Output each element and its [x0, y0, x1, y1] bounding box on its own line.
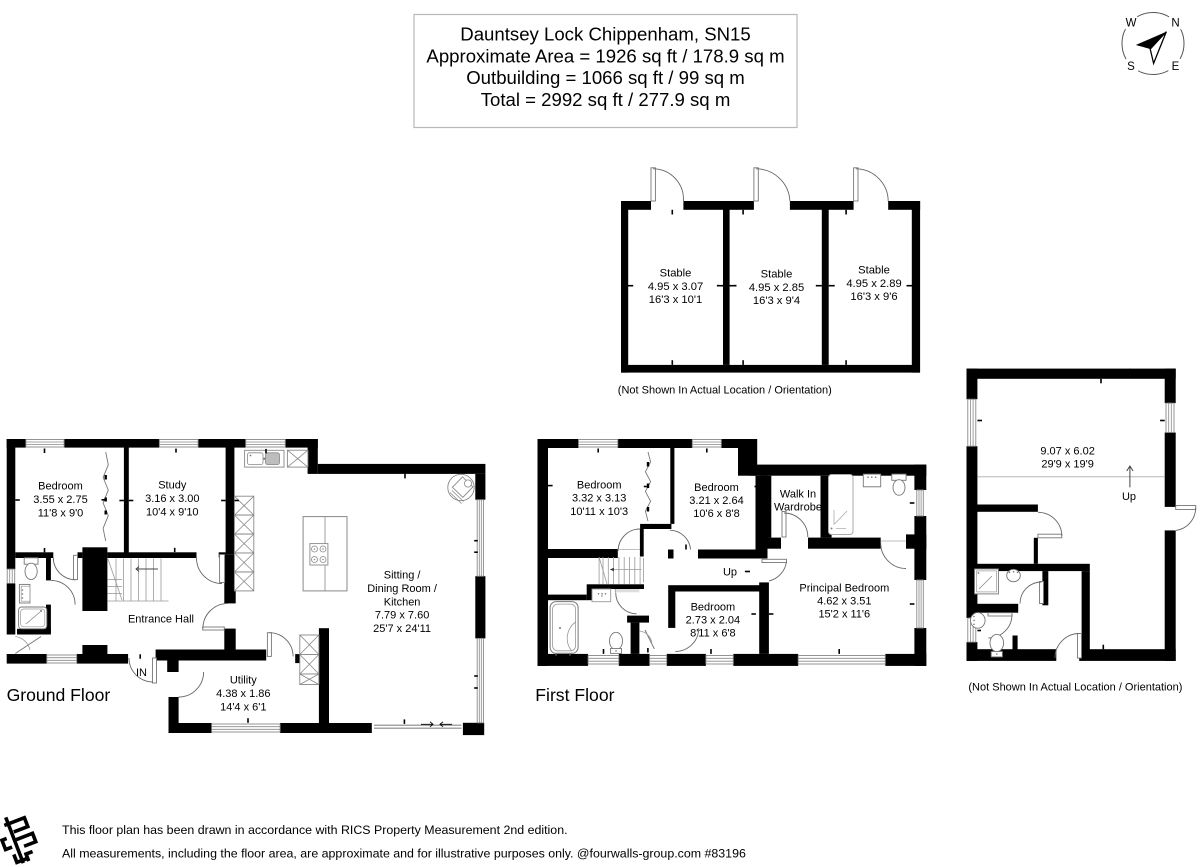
svg-text:4.95 x 2.85: 4.95 x 2.85: [749, 282, 804, 294]
svg-text:3.32 x 3.13: 3.32 x 3.13: [572, 493, 626, 505]
svg-text:10'11 x 10'3: 10'11 x 10'3: [570, 506, 628, 518]
svg-text:Entrance Hall: Entrance Hall: [128, 614, 194, 626]
svg-text:7.79 x 7.60: 7.79 x 7.60: [375, 610, 429, 622]
svg-text:This floor plan has been drawn: This floor plan has been drawn in accord…: [62, 823, 568, 837]
svg-text:Dining Room /: Dining Room /: [367, 583, 438, 595]
svg-text:4.62 x 3.51: 4.62 x 3.51: [817, 596, 871, 608]
svg-text:4.95 x 2.89: 4.95 x 2.89: [846, 278, 901, 290]
svg-text:Bedroom: Bedroom: [694, 482, 739, 494]
svg-text:S: S: [1127, 61, 1135, 73]
svg-text:Bedroom: Bedroom: [38, 480, 83, 492]
svg-text:29'9 x 19'9: 29'9 x 19'9: [1041, 458, 1094, 470]
svg-text:Outbuilding = 1066 sq ft / 99: Outbuilding = 1066 sq ft / 99 sq m: [466, 67, 745, 88]
svg-text:(Not Shown In Actual Location: (Not Shown In Actual Location / Orientat…: [968, 681, 1182, 693]
svg-text:Dauntsey Lock Chippenham, SN15: Dauntsey Lock Chippenham, SN15: [460, 24, 750, 45]
svg-text:Study: Study: [158, 480, 187, 492]
svg-text:IN: IN: [136, 667, 147, 679]
svg-text:Ground Floor: Ground Floor: [7, 685, 111, 705]
svg-text:First Floor: First Floor: [535, 685, 614, 705]
svg-text:4.95 x 3.07: 4.95 x 3.07: [648, 281, 703, 293]
svg-text:Stable: Stable: [761, 269, 793, 281]
svg-text:10'4 x 9'10: 10'4 x 9'10: [146, 506, 199, 518]
svg-text:14'4 x 6'1: 14'4 x 6'1: [220, 701, 266, 713]
svg-text:3.21 x 2.64: 3.21 x 2.64: [689, 495, 743, 507]
svg-text:11'8 x 9'0: 11'8 x 9'0: [38, 507, 84, 519]
svg-text:Kitchen: Kitchen: [384, 596, 421, 608]
svg-text:(Not Shown In Actual Location: (Not Shown In Actual Location / Orientat…: [618, 385, 832, 397]
svg-text:Up: Up: [723, 566, 737, 578]
svg-text:Utility: Utility: [230, 674, 257, 686]
svg-text:N: N: [1171, 18, 1179, 30]
svg-text:Walk In: Walk In: [780, 488, 816, 500]
svg-text:9.07 x 6.02: 9.07 x 6.02: [1040, 445, 1094, 457]
svg-text:Bedroom: Bedroom: [577, 480, 622, 492]
svg-text:16'3 x 9'6: 16'3 x 9'6: [850, 291, 897, 303]
svg-text:Approximate Area = 1926 sq ft: Approximate Area = 1926 sq ft / 178.9 sq…: [426, 45, 784, 66]
svg-text:All measurements, including th: All measurements, including the floor ar…: [62, 847, 746, 861]
svg-text:E: E: [1172, 61, 1180, 73]
svg-text:10'6 x 8'8: 10'6 x 8'8: [693, 508, 739, 520]
svg-text:Sitting /: Sitting /: [384, 569, 422, 581]
svg-text:Up: Up: [1122, 491, 1136, 503]
svg-text:Stable: Stable: [858, 265, 890, 277]
svg-text:Wardrobe: Wardrobe: [774, 501, 822, 513]
svg-text:Bedroom: Bedroom: [691, 601, 736, 613]
svg-text:4.38 x 1.86: 4.38 x 1.86: [216, 688, 270, 700]
svg-text:Principal Bedroom: Principal Bedroom: [799, 582, 889, 594]
svg-text:25'7 x 24'11: 25'7 x 24'11: [373, 623, 431, 635]
svg-text:15'2 x 11'6: 15'2 x 11'6: [818, 609, 870, 621]
svg-text:3.16 x 3.00: 3.16 x 3.00: [145, 493, 199, 505]
svg-text:W: W: [1126, 18, 1137, 30]
svg-text:16'3 x 10'1: 16'3 x 10'1: [649, 294, 702, 306]
svg-text:2.73 x 2.04: 2.73 x 2.04: [686, 614, 740, 626]
svg-text:Stable: Stable: [660, 268, 692, 280]
svg-text:8'11 x 6'8: 8'11 x 6'8: [690, 627, 736, 639]
svg-text:16'3 x 9'4: 16'3 x 9'4: [753, 295, 800, 307]
svg-text:Total = 2992 sq ft / 277.9 sq: Total = 2992 sq ft / 277.9 sq m: [481, 89, 731, 110]
svg-text:3.55 x 2.75: 3.55 x 2.75: [33, 494, 87, 506]
